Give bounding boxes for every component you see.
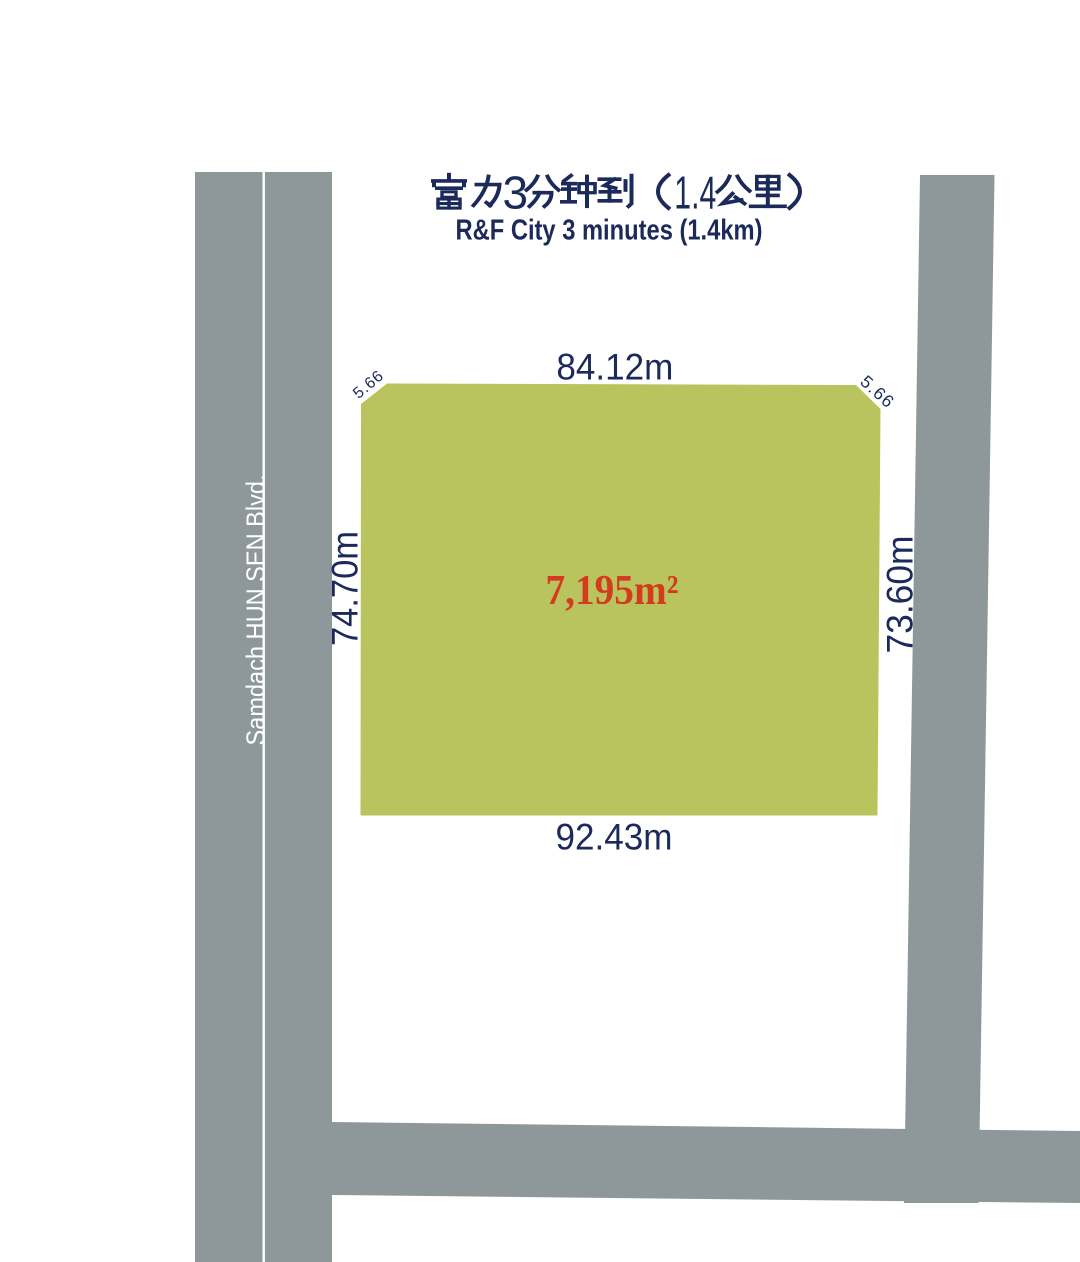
svg-text:84.12m: 84.12m — [556, 347, 673, 388]
svg-text:73.60m: 73.60m — [880, 536, 921, 654]
svg-text:74.70m: 74.70m — [325, 531, 366, 646]
svg-text:7,195m²: 7,195m² — [546, 568, 679, 614]
svg-text:R&F City 3 minutes (1.4km): R&F City 3 minutes (1.4km) — [456, 215, 763, 247]
svg-text:3: 3 — [503, 167, 529, 219]
svg-text:92.43m: 92.43m — [556, 817, 673, 858]
svg-text:Samdach HUN SEN Blvd.: Samdach HUN SEN Blvd. — [241, 475, 271, 746]
svg-text:1.4: 1.4 — [674, 167, 716, 219]
